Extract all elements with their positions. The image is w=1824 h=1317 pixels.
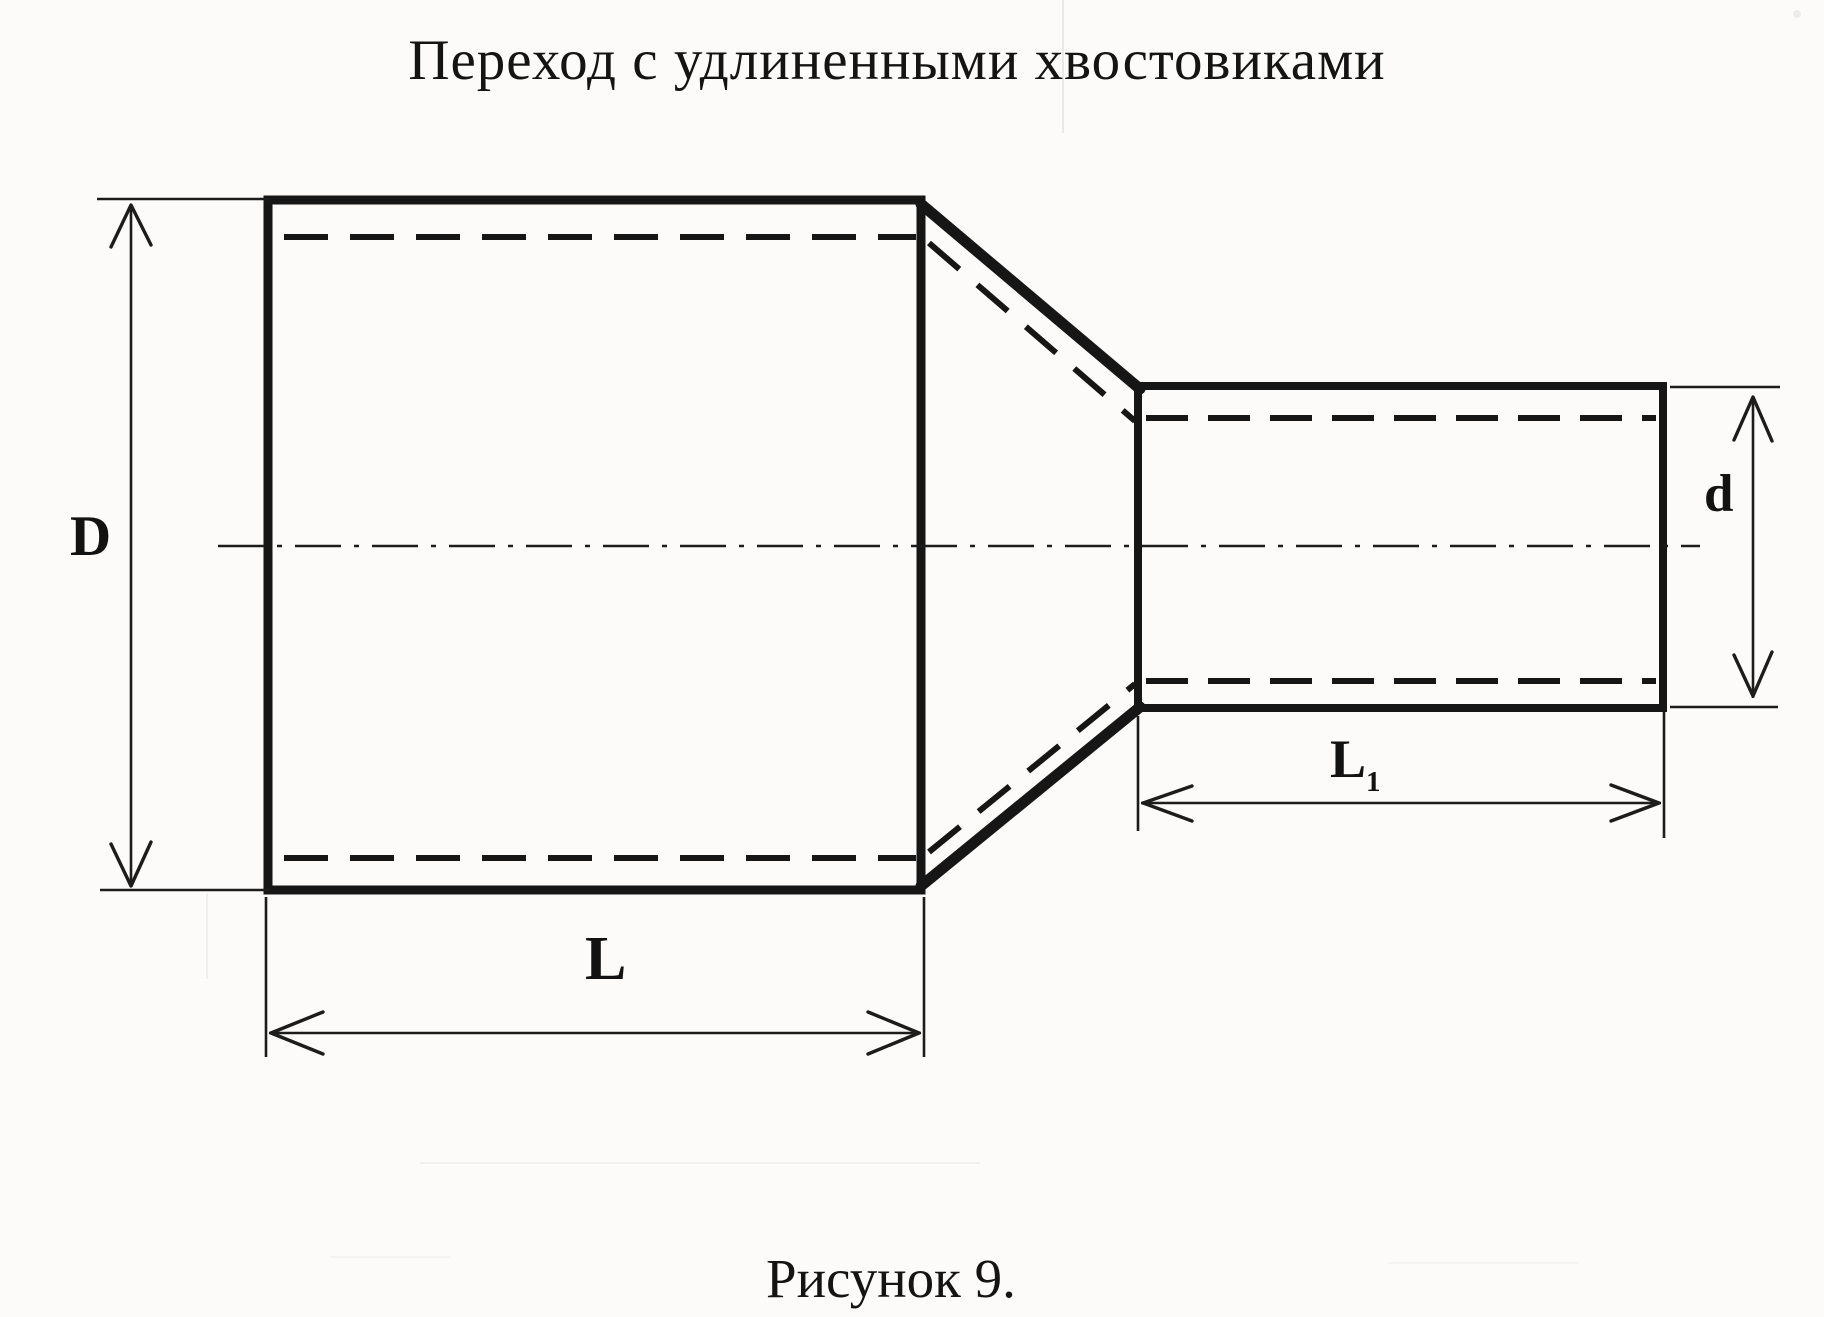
dim-label-small-length-subscript: 1	[1366, 766, 1381, 798]
scan-artifact	[1062, 0, 1064, 133]
large-cylinder-outline	[268, 200, 921, 890]
cone-inner-wall-top	[929, 243, 1135, 421]
dim-label-large-diameter: D	[70, 508, 111, 565]
scan-artifact	[330, 1256, 450, 1258]
cone-outline-top	[921, 204, 1140, 389]
dim-label-small-length: L1	[1330, 732, 1381, 797]
scan-artifact	[1388, 1262, 1578, 1264]
scan-artifact	[1793, 10, 1801, 18]
scan-artifact	[420, 1162, 980, 1164]
dim-label-small-diameter: d	[1704, 468, 1733, 521]
dim-label-small-length-base: L	[1330, 729, 1366, 789]
pipe-reducer-drawing	[0, 0, 1824, 1317]
cone-outline-bottom	[921, 707, 1140, 886]
cone-inner-wall-bottom	[929, 684, 1135, 852]
scanned-drawing-page: Переход с удлиненными хвостовиками	[0, 0, 1824, 1317]
scan-artifact	[206, 893, 208, 979]
dim-label-large-length: L	[585, 928, 626, 990]
figure-caption: Рисунок 9.	[766, 1247, 1016, 1310]
